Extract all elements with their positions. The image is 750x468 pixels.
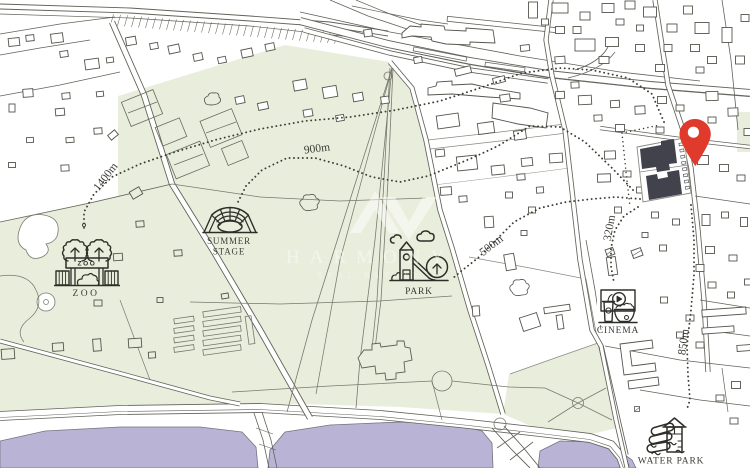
svg-text:HARMONY: HARMONY (286, 247, 454, 268)
svg-text:SUMMER: SUMMER (207, 236, 251, 246)
svg-text:REAL ESTATE: REAL ESTATE (317, 271, 423, 280)
svg-text:STAGE: STAGE (213, 247, 245, 257)
svg-text:PARK: PARK (405, 287, 433, 297)
svg-text:ZOO: ZOO (72, 289, 99, 299)
svg-text:WATER PARK: WATER PARK (638, 457, 705, 467)
svg-text:ZOO: ZOO (78, 261, 97, 268)
svg-text:CINEMA: CINEMA (597, 326, 639, 336)
